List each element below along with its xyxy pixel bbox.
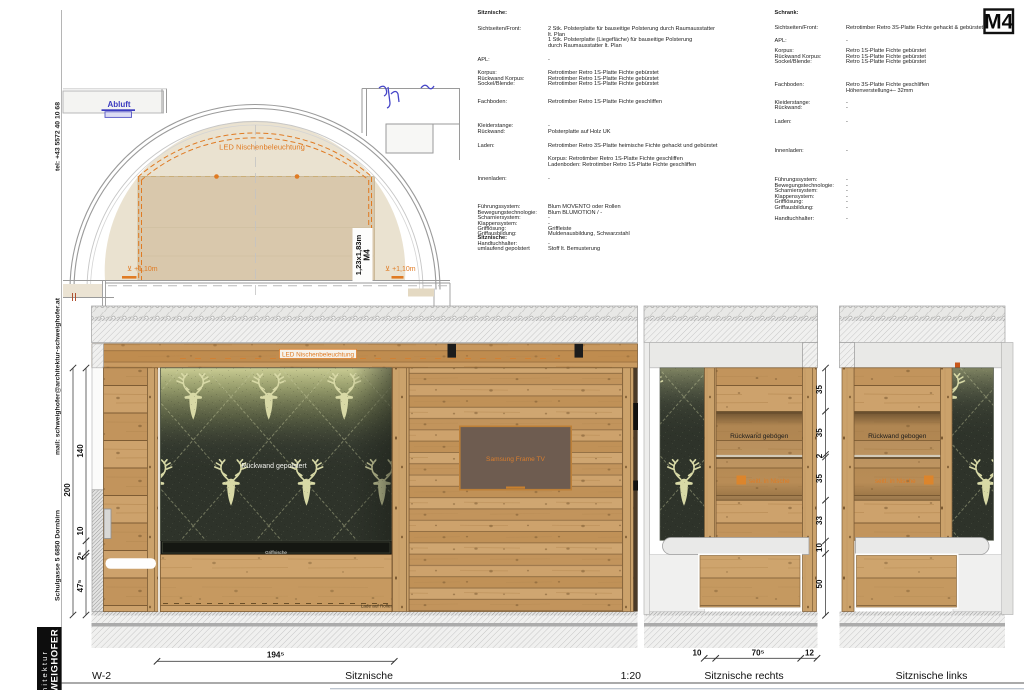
- svg-text:35: 35: [815, 474, 824, 483]
- svg-text:70⁵: 70⁵: [752, 649, 765, 658]
- svg-text:10: 10: [815, 543, 824, 552]
- svg-text:Schulgasse 5 6850 Dornbirn: Schulgasse 5 6850 Dornbirn: [55, 510, 62, 601]
- svg-text:47⁵: 47⁵: [76, 579, 85, 592]
- svg-text:Abluft: Abluft: [107, 100, 130, 109]
- svg-text:35: 35: [815, 385, 824, 394]
- svg-text:Sitznische rechts: Sitznische rechts: [704, 670, 783, 682]
- svg-text:12: 12: [805, 649, 814, 658]
- svg-text:M4: M4: [984, 11, 1013, 34]
- svg-text:1:20: 1:20: [621, 670, 642, 682]
- svg-text:1,23x1,83m: 1,23x1,83m: [354, 234, 363, 275]
- svg-text:Lade auf Rollen: Lade auf Rollen: [361, 604, 394, 609]
- svg-text:⊻ +1,10m: ⊻ +1,10m: [385, 265, 416, 273]
- svg-text:2⁵: 2⁵: [76, 552, 85, 560]
- svg-text:mail: schweighofer@architektur: mail: schweighofer@architektur-schweigho…: [55, 297, 62, 455]
- svg-text:hitektur: hitektur: [40, 650, 49, 690]
- svg-text:Sitznische links: Sitznische links: [896, 670, 968, 682]
- svg-text:Rückwand gebogen: Rückwand gebogen: [730, 433, 789, 440]
- svg-text:33: 33: [815, 516, 824, 525]
- svg-text:200: 200: [63, 483, 72, 497]
- svg-text:10: 10: [693, 649, 702, 658]
- svg-text:seitl. in Nische: seitl. in Nische: [875, 478, 916, 485]
- svg-text:50: 50: [815, 579, 824, 588]
- svg-text:2: 2: [815, 453, 824, 458]
- svg-text:seitl. in Nische: seitl. in Nische: [749, 478, 790, 485]
- svg-text:Rückwand gebogen: Rückwand gebogen: [868, 433, 927, 440]
- svg-text:tel: +43 5572 40 10 68: tel: +43 5572 40 10 68: [55, 102, 62, 171]
- svg-text:Sitznische: Sitznische: [345, 670, 393, 682]
- svg-text:⊻ +1,10m: ⊻ +1,10m: [127, 265, 158, 273]
- svg-text:Samsung Frame TV: Samsung Frame TV: [486, 456, 545, 463]
- svg-text:LED Nischenbeleuchtung: LED Nischenbeleuchtung: [282, 351, 355, 358]
- svg-text:35: 35: [815, 428, 824, 437]
- svg-text:194⁵: 194⁵: [267, 651, 285, 660]
- svg-text:Rückwand gepolstert: Rückwand gepolstert: [241, 463, 306, 470]
- svg-text:W-2: W-2: [92, 670, 111, 682]
- svg-text:M4: M4: [363, 249, 372, 261]
- svg-text:10: 10: [76, 526, 85, 535]
- svg-text:140: 140: [76, 444, 85, 458]
- svg-text:WEIGHOFER: WEIGHOFER: [50, 629, 61, 690]
- svg-text:LED Nischenbeleuchtung: LED Nischenbeleuchtung: [219, 143, 305, 152]
